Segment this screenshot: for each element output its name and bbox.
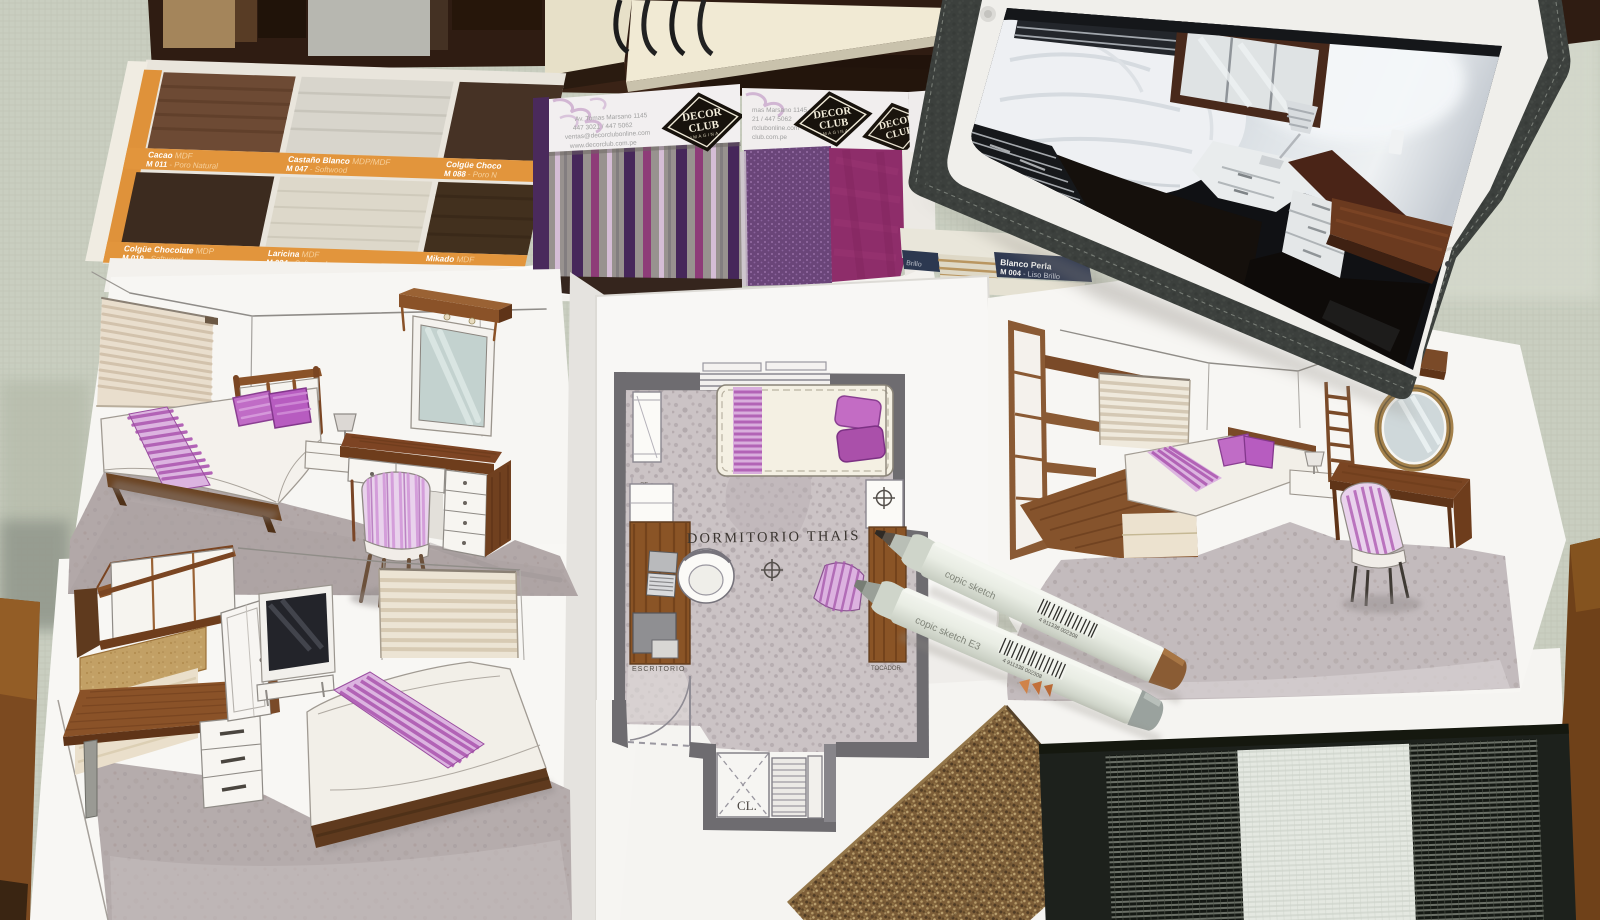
svg-text:M 088 - Poro N: M 088 - Poro N xyxy=(443,169,498,180)
svg-text:CL.: CL. xyxy=(737,798,757,813)
svg-text:rtclubonline.com: rtclubonline.com xyxy=(752,125,799,132)
svg-text:21 / 447 5062: 21 / 447 5062 xyxy=(752,116,792,123)
svg-text:TOCADOR: TOCADOR xyxy=(871,666,902,672)
svg-text:mas Marsano 1145: mas Marsano 1145 xyxy=(752,107,808,114)
svg-text:club.com.pe: club.com.pe xyxy=(752,134,787,141)
svg-text:ESCRITORIO: ESCRITORIO xyxy=(632,666,685,673)
svg-text:DORMITORIO THAIS: DORMITORIO THAIS xyxy=(687,528,861,547)
